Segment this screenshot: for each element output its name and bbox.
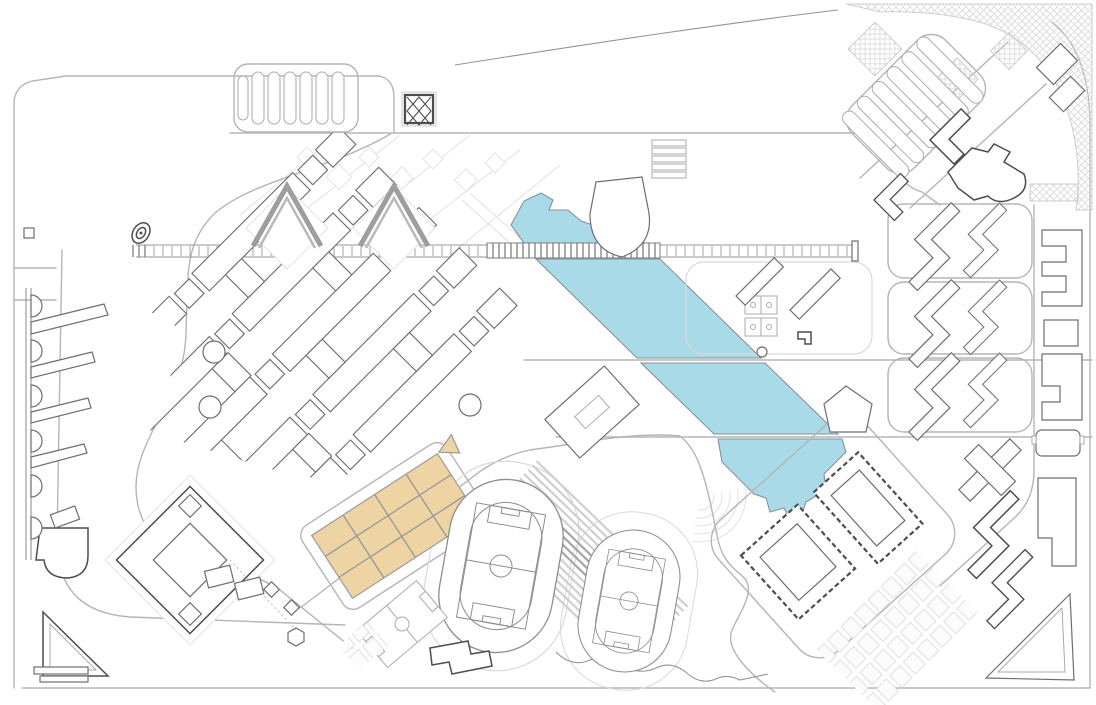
site-plan-drawing (0, 0, 1096, 705)
hexagon-pavilion (288, 628, 304, 646)
northeast-district (840, 4, 1092, 220)
north-parking-lot (238, 72, 344, 124)
running-track-2 (571, 523, 688, 680)
corner-cross-building (946, 426, 1034, 514)
small-notched-building (798, 332, 811, 344)
lake-band-2 (641, 363, 838, 434)
crosshatch-square (1030, 184, 1078, 201)
basketball-courts (745, 296, 777, 336)
stream-path (556, 652, 768, 681)
campus-site-plan (0, 0, 1096, 705)
l-building (874, 174, 921, 221)
lake-band-1 (536, 259, 761, 358)
dormitory-superblocks (891, 203, 1023, 441)
stepped-pavilion (824, 386, 872, 432)
mid-north-parking-bars (652, 140, 686, 178)
lakeside-southwest-building (545, 366, 639, 458)
amphitheater-terraces (692, 488, 746, 542)
square-plaza (402, 92, 436, 126)
arc-building (36, 528, 88, 578)
gate-square (24, 228, 34, 238)
east-edge-buildings (1032, 230, 1084, 566)
corner-triangle-building (34, 612, 108, 682)
gate-spiral-marker (128, 219, 153, 246)
north-boundary-curve (455, 10, 838, 65)
spine-east-cap (852, 241, 858, 261)
